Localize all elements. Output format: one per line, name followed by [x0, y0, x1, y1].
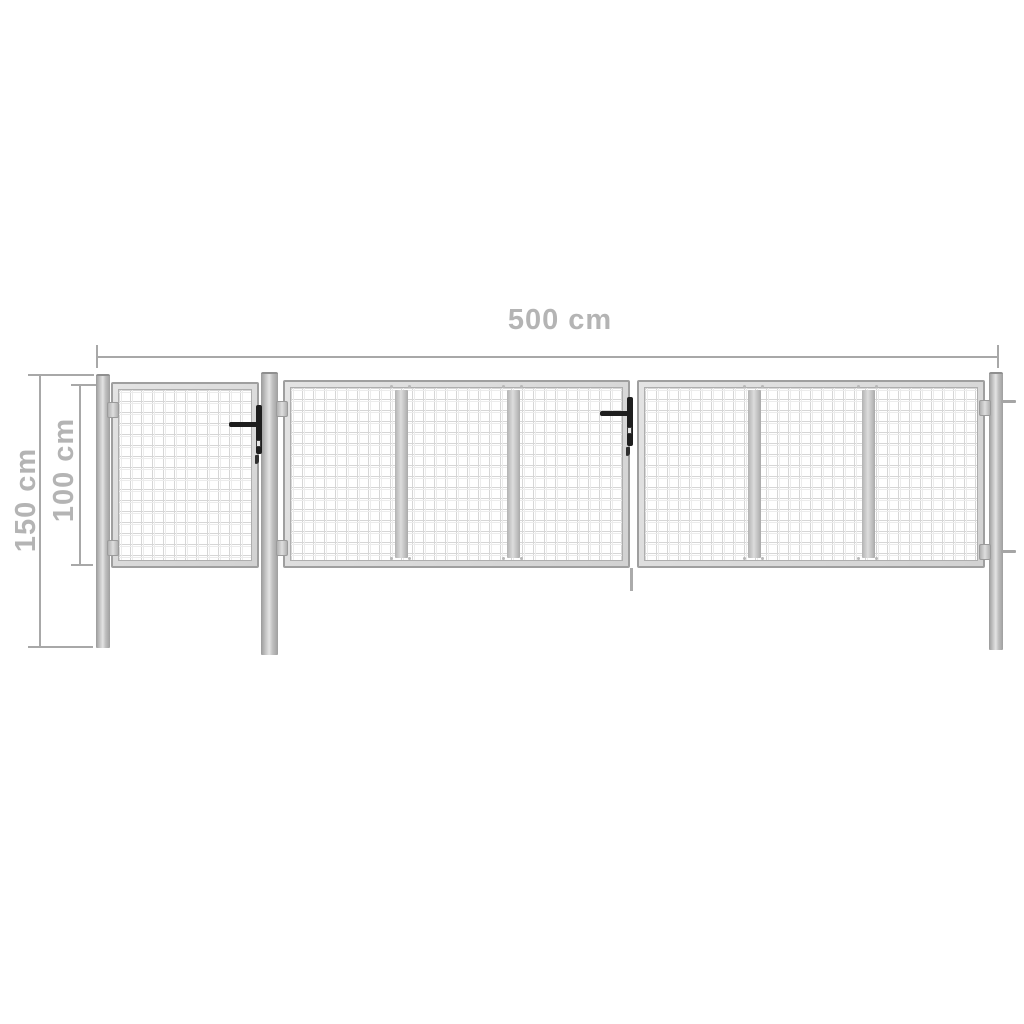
dimension-width-tick-left: [96, 345, 98, 368]
double-gate-right-leaf: [637, 380, 985, 568]
double-gate-left-leaf-bar-1: [395, 390, 408, 558]
double-gate-handle: [600, 411, 629, 416]
single-gate-latch: [255, 455, 259, 464]
dimension-post-height-label: 150 cm: [10, 410, 42, 590]
dimension-width-label: 500 cm: [440, 304, 680, 336]
single-gate-hinge-bottom: [107, 540, 119, 556]
dimension-gate-height-tick-bottom: [71, 564, 93, 566]
double-gate-latch: [626, 447, 630, 456]
dimension-gate-height-line: [79, 385, 81, 566]
left-leaf-hinge-bottom: [276, 540, 288, 556]
double-gate-left-leaf: [283, 380, 630, 568]
right-post: [989, 372, 1003, 650]
double-gate-lock-plate: [627, 397, 633, 446]
dimension-post-height-tick-bottom: [28, 646, 93, 648]
left-leaf-hinge-top: [276, 401, 288, 417]
double-gate-left-leaf-mesh: [290, 387, 623, 561]
double-gate-right-leaf-bar-1: [748, 390, 761, 558]
dimension-gate-height-label: 100 cm: [48, 380, 80, 560]
right-post-hinge-pin-top: [1001, 400, 1016, 403]
single-gate-hinge-top: [107, 402, 119, 418]
gate-dimension-diagram: 500 cm 150 cm 100 cm: [0, 0, 1024, 1024]
center-drop-rod: [630, 568, 633, 591]
right-leaf-hinge-top: [979, 400, 991, 416]
right-leaf-hinge-bottom: [979, 544, 991, 560]
single-gate: [111, 382, 259, 568]
dimension-post-height-line: [39, 375, 41, 648]
double-gate-right-leaf-mesh: [644, 387, 978, 561]
dimension-width-tick-right: [997, 345, 999, 368]
right-post-hinge-pin-bottom: [1001, 550, 1016, 553]
double-gate-keyhole: [627, 427, 632, 434]
single-gate-mesh: [118, 389, 252, 561]
single-gate-handle: [229, 422, 258, 427]
dimension-width-line: [97, 356, 999, 358]
dimension-post-height-tick-top: [28, 374, 94, 376]
double-gate-left-leaf-bar-2: [507, 390, 520, 558]
double-gate-right-leaf-bar-2: [862, 390, 875, 558]
single-gate-keyhole: [256, 440, 261, 447]
